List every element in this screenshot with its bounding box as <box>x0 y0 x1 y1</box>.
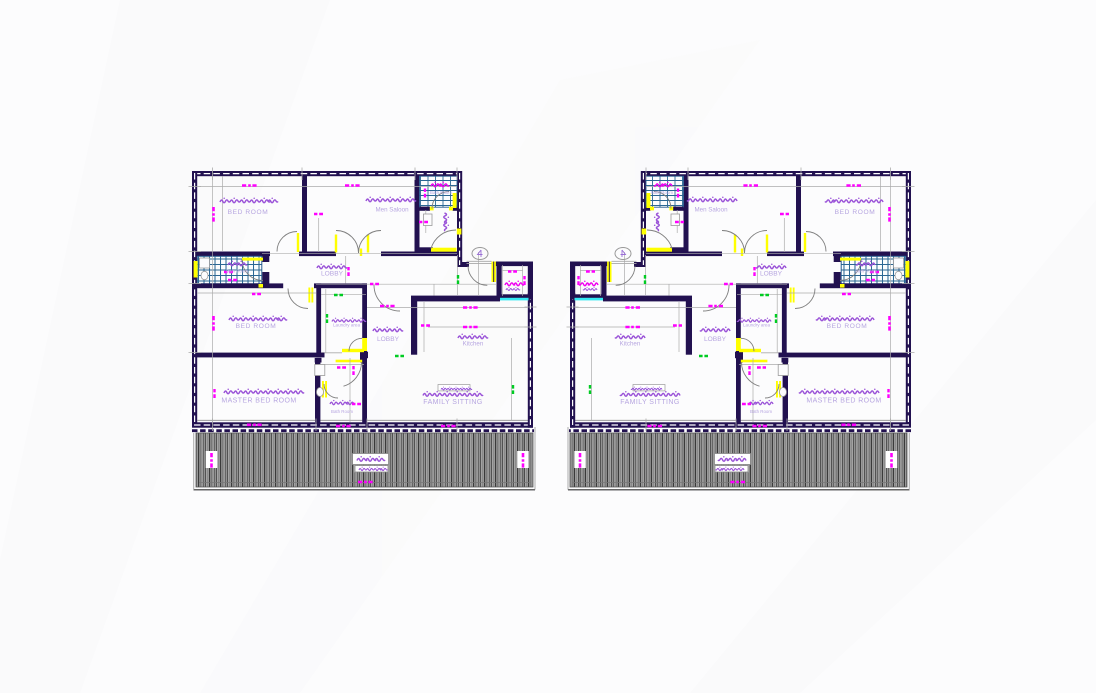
svg-text:MASTER BED ROOM: MASTER BED ROOM <box>806 398 881 405</box>
svg-text:Bath Room: Bath Room <box>750 409 772 414</box>
svg-text:Kitchen: Kitchen <box>463 341 484 348</box>
svg-text:Bath Room: Bath Room <box>651 190 673 195</box>
svg-text:Men Saloon: Men Saloon <box>694 207 728 214</box>
svg-text:MASTER BED ROOM: MASTER BED ROOM <box>221 398 296 405</box>
svg-text:Laundry area: Laundry area <box>333 323 361 328</box>
svg-text:BED ROOM: BED ROOM <box>228 209 269 216</box>
svg-text:Kitchen: Kitchen <box>620 341 641 348</box>
svg-text:BED ROOM: BED ROOM <box>827 323 868 330</box>
svg-text:LOBBY: LOBBY <box>377 336 400 343</box>
svg-text:FAMILY SITTING: FAMILY SITTING <box>423 399 482 406</box>
svg-text:Bath Room: Bath Room <box>855 269 877 274</box>
svg-text:LOBBY: LOBBY <box>321 271 344 278</box>
svg-text:Laundry area: Laundry area <box>743 323 771 328</box>
svg-text:Men Saloon: Men Saloon <box>375 207 409 214</box>
svg-text:BED ROOM: BED ROOM <box>835 209 876 216</box>
svg-text:Bath Room: Bath Room <box>226 269 248 274</box>
svg-text:Bath Room: Bath Room <box>331 409 353 414</box>
svg-text:LOBBY: LOBBY <box>704 336 727 343</box>
svg-text:FAMILY SITTING: FAMILY SITTING <box>620 399 679 406</box>
svg-text:LOBBY: LOBBY <box>760 271 783 278</box>
svg-text:Bath Room: Bath Room <box>430 190 452 195</box>
svg-text:BED ROOM: BED ROOM <box>236 323 277 330</box>
